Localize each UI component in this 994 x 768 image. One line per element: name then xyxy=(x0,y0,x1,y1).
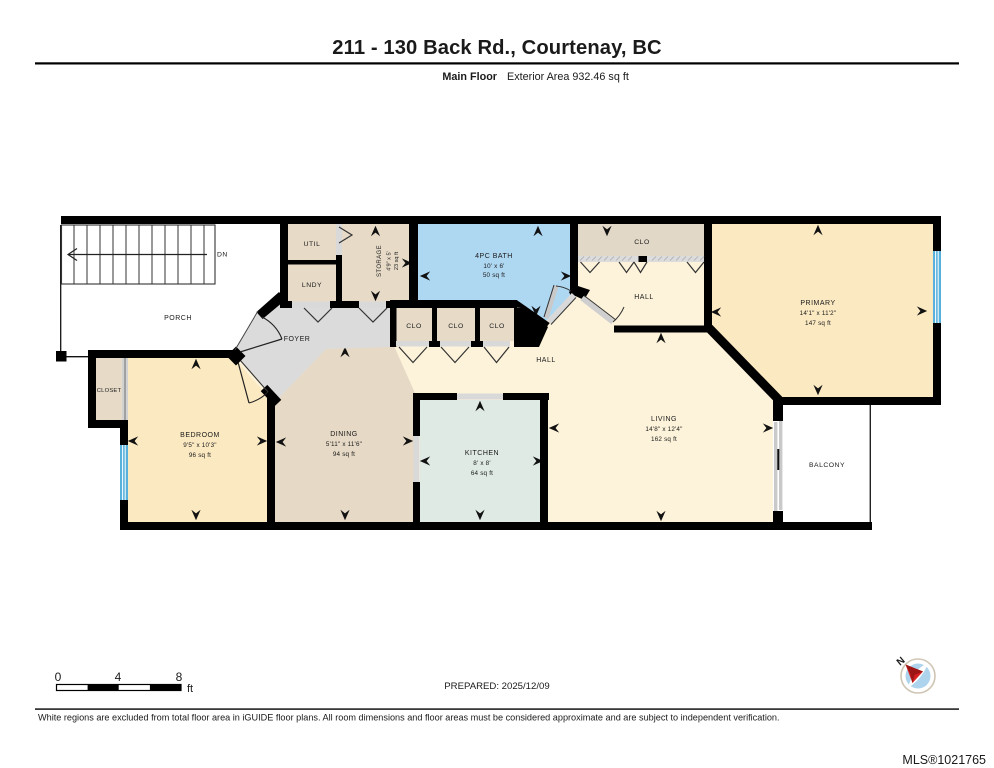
svg-text:FOYER: FOYER xyxy=(284,336,311,343)
svg-text:LIVING: LIVING xyxy=(651,416,677,423)
svg-text:4PC BATH: 4PC BATH xyxy=(475,253,513,260)
svg-text:Main Floor: Main Floor xyxy=(442,71,497,83)
svg-text:HALL: HALL xyxy=(536,357,556,364)
svg-text:211 - 130 Back Rd., Courtenay,: 211 - 130 Back Rd., Courtenay, BC xyxy=(332,37,662,59)
svg-text:White regions are excluded fro: White regions are excluded from total fl… xyxy=(38,713,780,723)
svg-text:STORAGE: STORAGE xyxy=(377,245,383,277)
svg-text:DINING: DINING xyxy=(330,431,358,438)
svg-text:BALCONY: BALCONY xyxy=(809,462,845,469)
svg-text:147 sq ft: 147 sq ft xyxy=(805,320,831,327)
svg-text:10' x 6': 10' x 6' xyxy=(483,263,504,270)
svg-text:DN: DN xyxy=(217,252,228,259)
svg-text:PRIMARY: PRIMARY xyxy=(800,300,835,307)
svg-text:BEDROOM: BEDROOM xyxy=(180,432,220,439)
svg-text:PREPARED: 2025/12/09: PREPARED: 2025/12/09 xyxy=(444,681,549,692)
svg-text:8' x 8': 8' x 8' xyxy=(473,460,490,467)
svg-text:14'8" x 12'4": 14'8" x 12'4" xyxy=(645,426,682,433)
svg-text:CLO: CLO xyxy=(634,239,649,246)
svg-text:0: 0 xyxy=(55,670,62,684)
svg-text:162 sq ft: 162 sq ft xyxy=(651,436,677,443)
svg-text:4: 4 xyxy=(115,670,122,684)
svg-text:14'1" x 11'2": 14'1" x 11'2" xyxy=(800,310,837,317)
svg-text:Exterior Area 932.46 sq ft: Exterior Area 932.46 sq ft xyxy=(507,71,629,83)
svg-text:64 sq ft: 64 sq ft xyxy=(471,470,493,477)
svg-text:8: 8 xyxy=(176,670,183,684)
svg-text:UTIL: UTIL xyxy=(304,241,321,248)
svg-text:96 sq ft: 96 sq ft xyxy=(189,452,211,459)
svg-text:PORCH: PORCH xyxy=(164,315,192,322)
svg-text:HALL: HALL xyxy=(634,294,654,301)
svg-text:MLS®1021765: MLS®1021765 xyxy=(902,753,986,767)
svg-text:4'9" x 5': 4'9" x 5' xyxy=(387,251,393,270)
svg-text:CLO: CLO xyxy=(448,323,463,330)
svg-text:CLO: CLO xyxy=(489,323,504,330)
svg-text:94 sq ft: 94 sq ft xyxy=(333,451,355,458)
svg-text:9'5" x 10'3": 9'5" x 10'3" xyxy=(183,442,216,449)
svg-text:50 sq ft: 50 sq ft xyxy=(483,272,505,279)
svg-text:LNDY: LNDY xyxy=(302,282,322,289)
svg-text:CLOSET: CLOSET xyxy=(97,388,122,394)
svg-text:ft: ft xyxy=(187,683,193,695)
svg-text:23 sq ft: 23 sq ft xyxy=(394,251,400,270)
svg-text:CLO: CLO xyxy=(406,323,421,330)
svg-text:5'11" x 11'6": 5'11" x 11'6" xyxy=(326,441,362,448)
svg-text:KITCHEN: KITCHEN xyxy=(465,450,499,457)
